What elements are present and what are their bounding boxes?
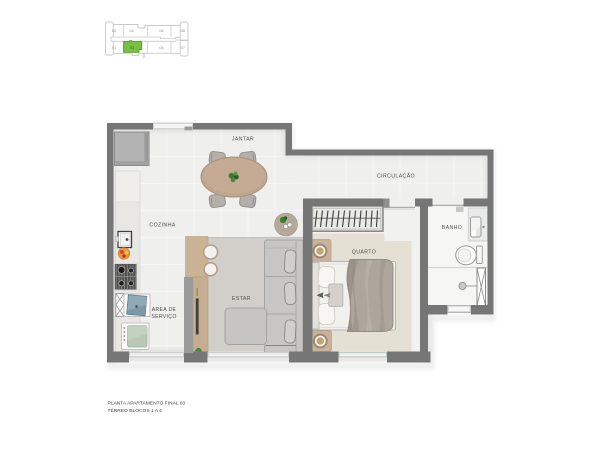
svg-text:08: 08 bbox=[181, 29, 185, 33]
svg-text:SERVIÇO: SERVIÇO bbox=[151, 314, 176, 320]
svg-text:01: 01 bbox=[112, 46, 116, 50]
svg-text:CIRCULAÇÃO: CIRCULAÇÃO bbox=[377, 173, 415, 180]
svg-text:TÉRREO BLOCOS 1 A 4: TÉRREO BLOCOS 1 A 4 bbox=[108, 407, 163, 414]
svg-text:ESTAR: ESTAR bbox=[232, 296, 251, 302]
svg-text:BANHO: BANHO bbox=[442, 225, 462, 231]
svg-text:QUARTO: QUARTO bbox=[352, 250, 376, 256]
svg-text:07: 07 bbox=[181, 46, 185, 50]
svg-text:JANTAR: JANTAR bbox=[232, 137, 254, 143]
svg-text:PLANTA APARTAMENTO FINAL 03: PLANTA APARTAMENTO FINAL 03 bbox=[108, 401, 186, 407]
svg-text:COZINHA: COZINHA bbox=[149, 223, 175, 229]
svg-text:03: 03 bbox=[130, 46, 134, 50]
svg-text:AREA DE: AREA DE bbox=[152, 307, 177, 313]
svg-text:02: 02 bbox=[112, 29, 116, 33]
svg-text:06: 06 bbox=[159, 29, 163, 33]
svg-text:04: 04 bbox=[129, 29, 133, 33]
svg-text:05: 05 bbox=[159, 46, 163, 50]
